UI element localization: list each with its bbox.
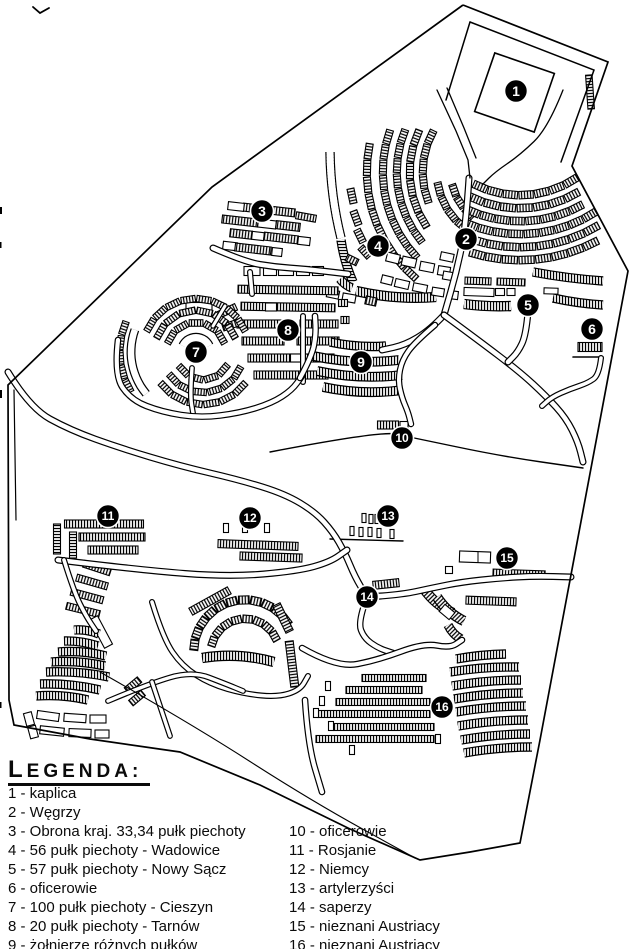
svg-text:6: 6 bbox=[588, 321, 596, 337]
svg-text:2: 2 bbox=[462, 231, 470, 247]
svg-text:4: 4 bbox=[374, 238, 382, 254]
svg-text:12: 12 bbox=[243, 511, 257, 525]
svg-text:9: 9 bbox=[357, 354, 365, 370]
svg-text:3: 3 bbox=[258, 203, 266, 219]
svg-text:5: 5 bbox=[524, 297, 532, 313]
svg-text:14: 14 bbox=[360, 590, 374, 604]
svg-text:16: 16 bbox=[435, 700, 449, 714]
svg-text:15: 15 bbox=[500, 551, 514, 565]
svg-text:13: 13 bbox=[381, 509, 395, 523]
svg-text:11: 11 bbox=[102, 509, 115, 523]
svg-text:7: 7 bbox=[192, 344, 200, 360]
svg-text:10: 10 bbox=[395, 431, 409, 445]
svg-text:1: 1 bbox=[512, 83, 520, 99]
svg-text:8: 8 bbox=[284, 322, 292, 338]
